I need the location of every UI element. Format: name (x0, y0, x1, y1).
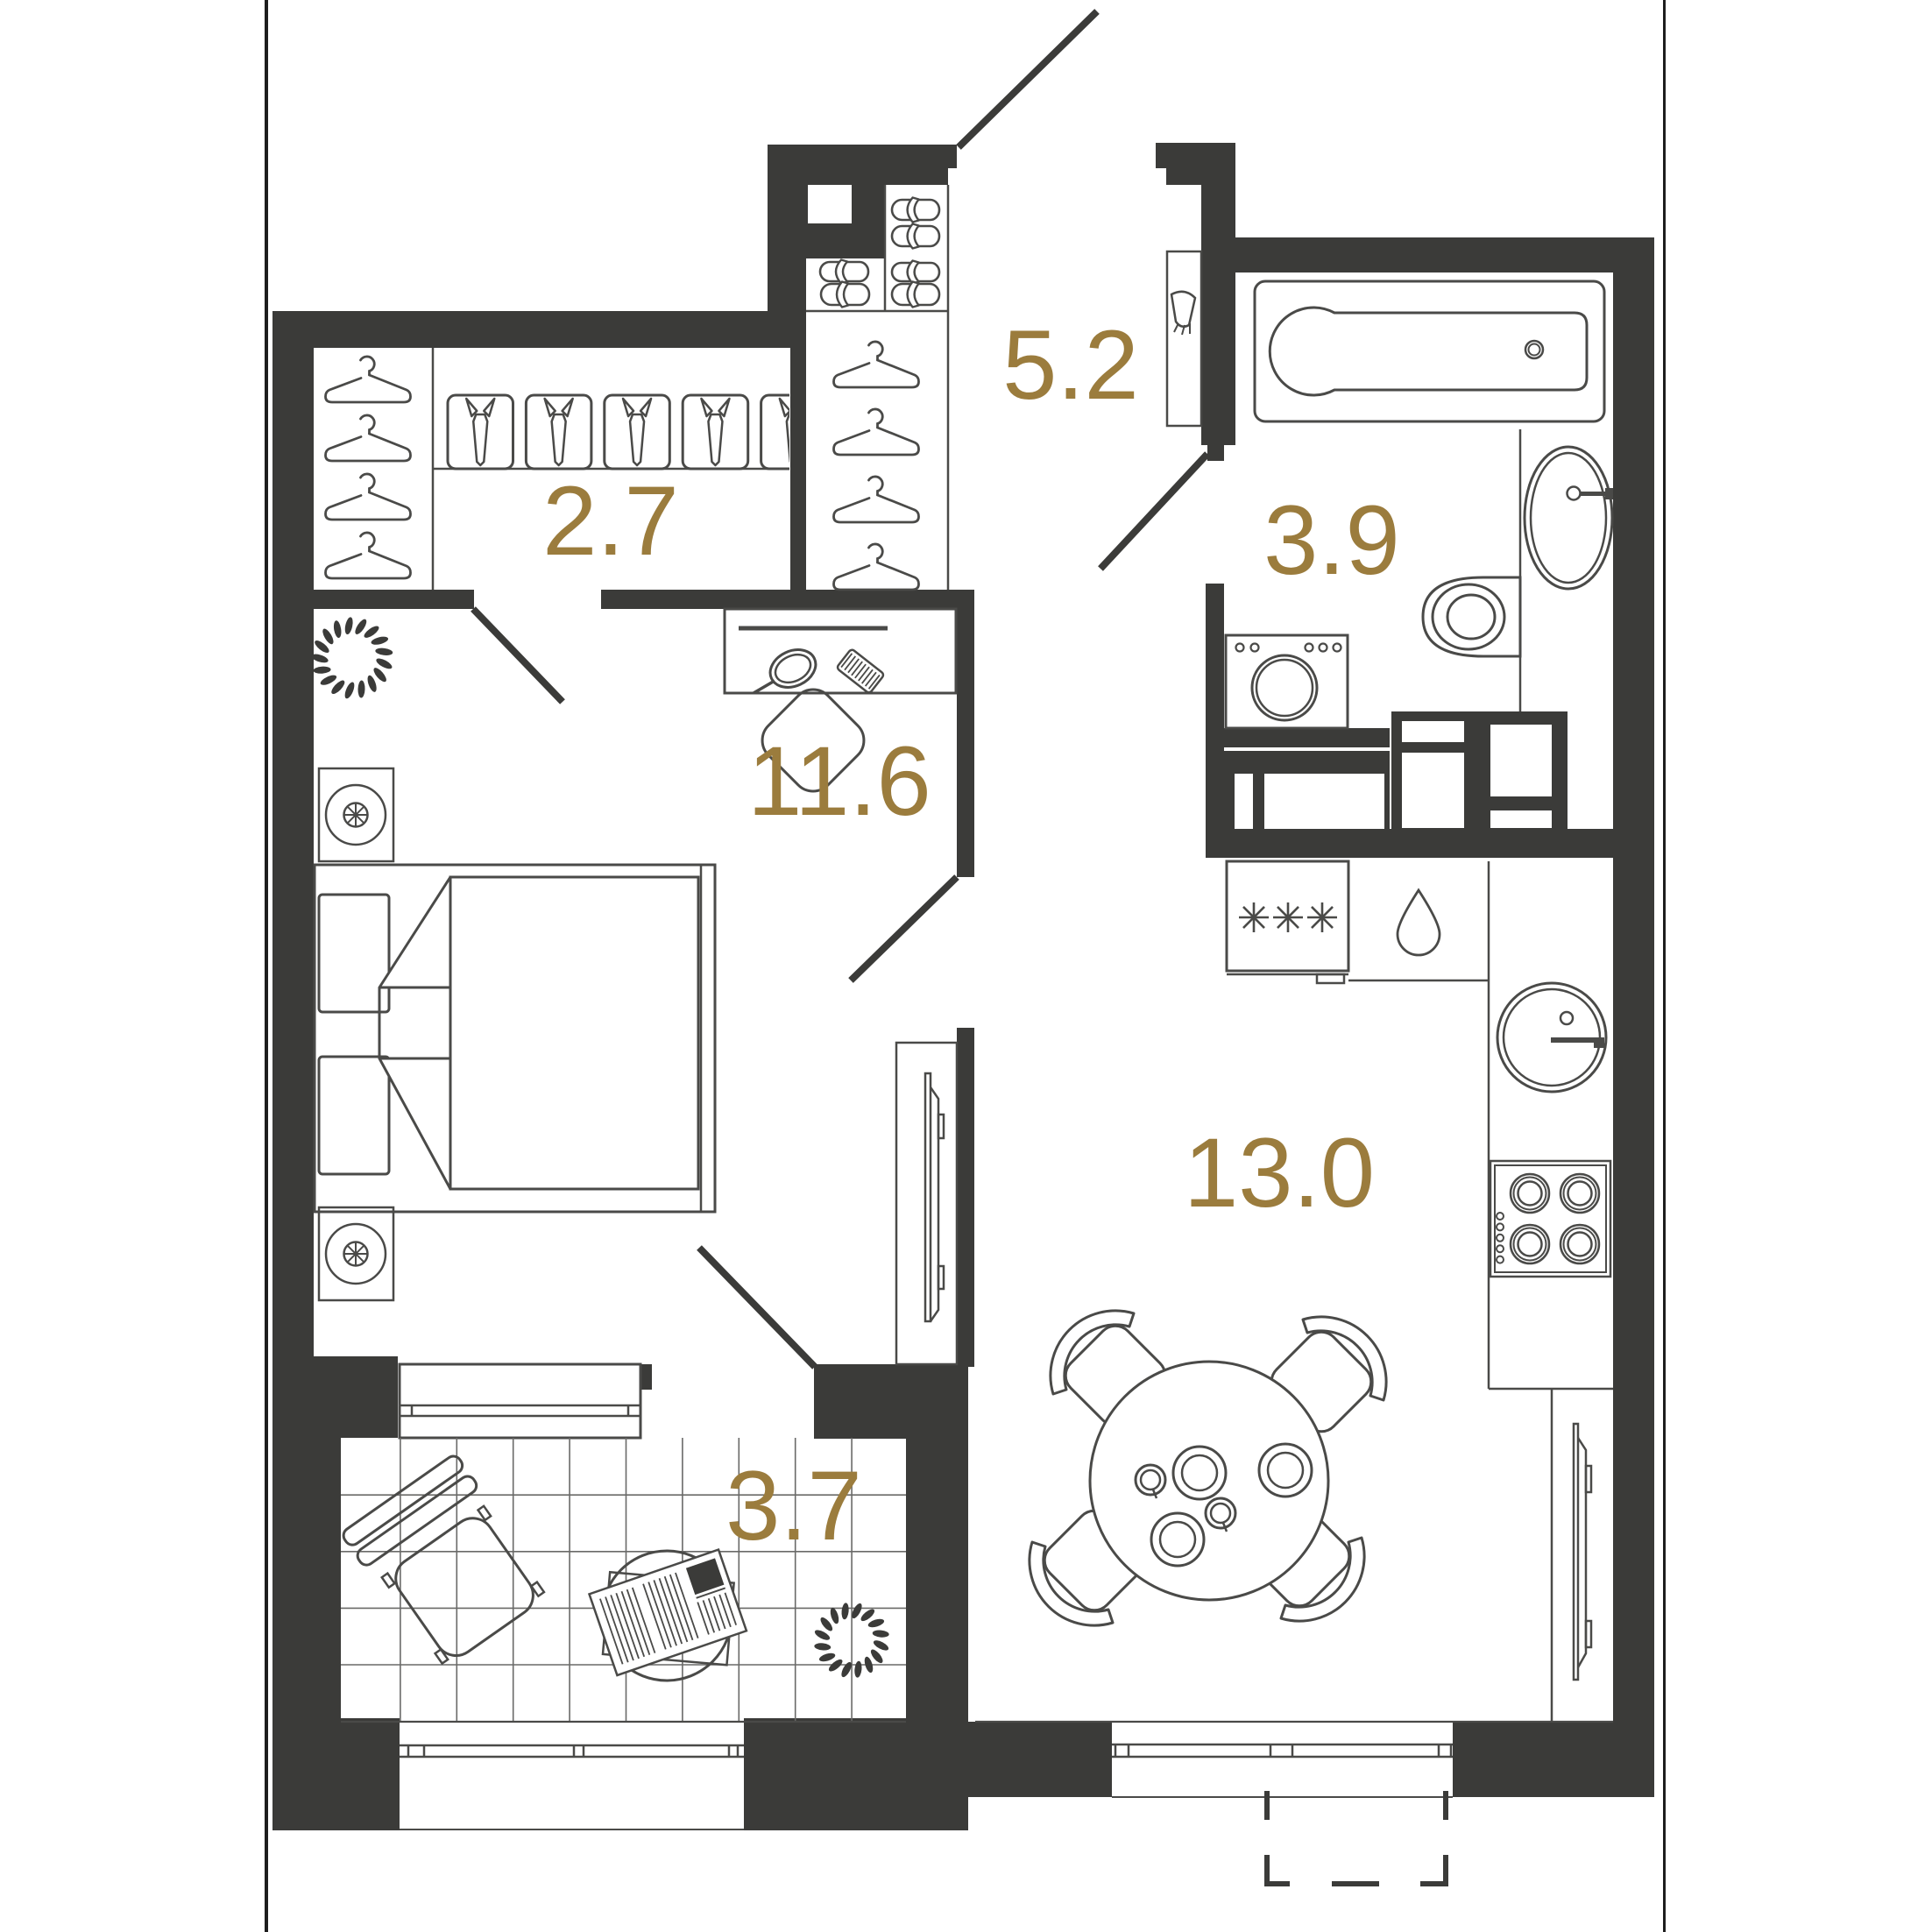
svg-text:3.9: 3.9 (1263, 485, 1400, 595)
svg-text:13.0: 13.0 (1184, 1118, 1375, 1228)
svg-text:2.7: 2.7 (542, 466, 679, 576)
svg-text:5.2: 5.2 (1002, 310, 1139, 420)
svg-text:11.6: 11.6 (747, 726, 931, 836)
svg-text:3.7: 3.7 (725, 1451, 862, 1560)
